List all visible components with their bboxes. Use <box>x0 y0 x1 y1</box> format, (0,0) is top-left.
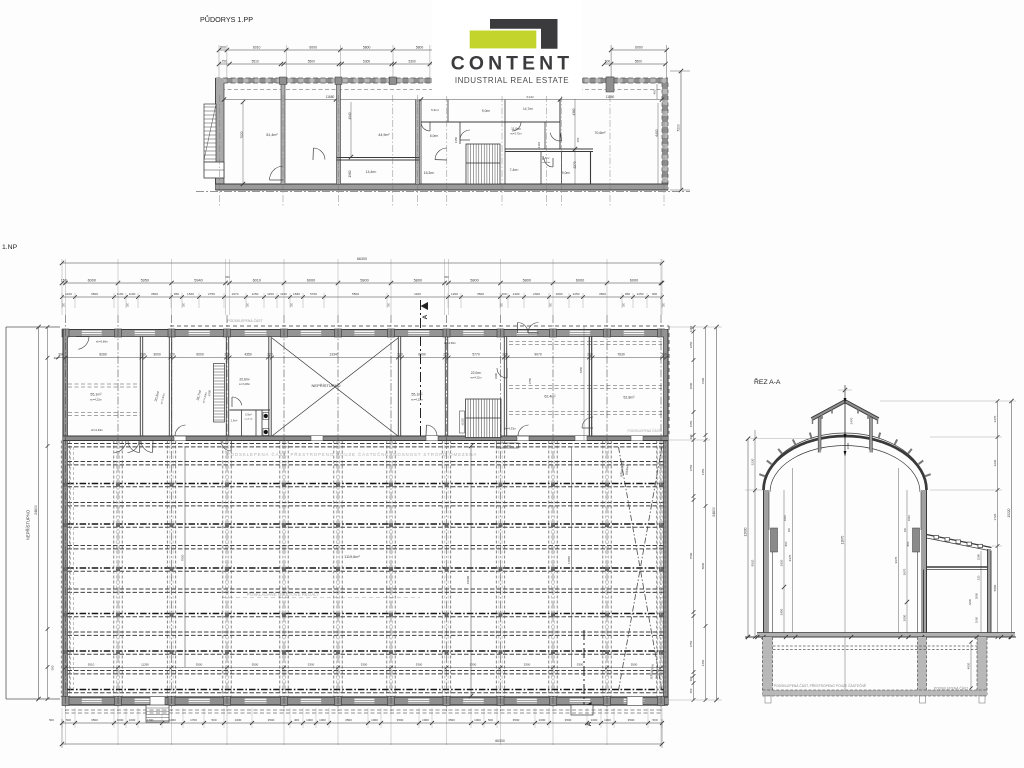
svg-text:24800: 24800 <box>34 505 38 515</box>
svg-text:6010: 6010 <box>253 278 261 282</box>
svg-text:300: 300 <box>652 292 657 296</box>
svg-text:5800: 5800 <box>363 45 371 49</box>
svg-text:9370: 9370 <box>894 556 898 563</box>
svg-text:PODSKLEPENÁ ČÁST: PODSKLEPENÁ ČÁST <box>934 686 968 691</box>
svg-text:1000: 1000 <box>306 718 313 722</box>
svg-text:6000: 6000 <box>196 352 204 356</box>
svg-text:2920: 2920 <box>780 559 784 566</box>
svg-text:1.NP: 1.NP <box>2 244 18 251</box>
svg-text:66300: 66300 <box>495 739 505 743</box>
svg-text:500: 500 <box>488 718 493 722</box>
svg-text:500: 500 <box>51 665 55 670</box>
svg-text:PODSKLEPENÁ ČÁST, PŘESTROPENO: PODSKLEPENÁ ČÁST, PŘESTROPENO POUZE ČÁST… <box>774 683 867 688</box>
svg-text:5500: 5500 <box>308 59 315 63</box>
svg-text:sv=3,08m: sv=3,08m <box>239 383 250 386</box>
svg-text:55,1m²: 55,1m² <box>411 393 423 397</box>
svg-text:3500: 3500 <box>151 292 158 296</box>
svg-text:500: 500 <box>49 718 54 722</box>
svg-text:200: 200 <box>502 352 508 356</box>
svg-text:3390: 3390 <box>494 372 498 379</box>
svg-text:4700: 4700 <box>208 389 212 396</box>
svg-text:9520: 9520 <box>751 559 755 566</box>
svg-text:200: 200 <box>397 352 403 356</box>
svg-text:1150: 1150 <box>267 292 274 296</box>
svg-text:35,7m²: 35,7m² <box>196 389 203 401</box>
svg-text:2470: 2470 <box>993 415 997 422</box>
svg-text:7,4m²: 7,4m² <box>510 168 520 172</box>
svg-text:1550: 1550 <box>689 420 693 427</box>
svg-text:1250: 1250 <box>637 292 644 296</box>
svg-text:NEPŘÍSTUPNO: NEPŘÍSTUPNO <box>312 383 341 388</box>
svg-text:5770: 5770 <box>472 352 480 356</box>
svg-text:300: 300 <box>551 302 553 307</box>
svg-text:5500: 5500 <box>252 663 259 667</box>
svg-text:1960: 1960 <box>169 718 176 722</box>
svg-text:300: 300 <box>58 352 64 356</box>
svg-text:300: 300 <box>661 352 667 356</box>
svg-text:170: 170 <box>169 352 175 356</box>
svg-text:22,0m²: 22,0m² <box>471 371 482 375</box>
svg-text:1100: 1100 <box>414 292 421 296</box>
svg-text:2300: 2300 <box>533 292 540 296</box>
svg-text:220: 220 <box>977 575 981 580</box>
svg-text:1100: 1100 <box>117 292 124 296</box>
svg-text:9,0m²: 9,0m² <box>562 171 570 175</box>
svg-text:1000: 1000 <box>422 718 429 722</box>
svg-text:950: 950 <box>625 292 630 296</box>
svg-text:sv=4,1m: sv=4,1m <box>244 419 253 421</box>
svg-text:4940: 4940 <box>348 112 352 119</box>
svg-text:CONTENT: CONTENT <box>451 53 573 75</box>
svg-text:sv=3,0m: sv=3,0m <box>542 162 551 164</box>
svg-text:44,9m²: 44,9m² <box>378 133 390 137</box>
svg-text:14,4m²: 14,4m² <box>366 170 377 174</box>
svg-text:52,8m²: 52,8m² <box>623 396 635 400</box>
svg-text:15220: 15220 <box>1007 508 1011 517</box>
svg-text:300: 300 <box>389 302 391 307</box>
svg-text:1000: 1000 <box>975 616 979 623</box>
svg-text:5300: 5300 <box>363 59 370 63</box>
svg-text:5500: 5500 <box>196 663 203 667</box>
svg-text:1150: 1150 <box>280 292 287 296</box>
svg-text:sh=5,66m: sh=5,66m <box>96 340 109 344</box>
svg-text:1700: 1700 <box>190 718 197 722</box>
svg-text:5500: 5500 <box>635 59 642 63</box>
svg-text:3500: 3500 <box>565 718 572 722</box>
svg-text:5950: 5950 <box>141 278 149 282</box>
svg-text:3500: 3500 <box>91 292 98 296</box>
svg-text:750: 750 <box>222 59 228 63</box>
svg-text:6000: 6000 <box>635 45 643 49</box>
svg-text:3500: 3500 <box>477 292 484 296</box>
svg-text:5510: 5510 <box>252 59 259 63</box>
svg-text:5800: 5800 <box>523 278 531 282</box>
svg-text:20,3m²: 20,3m² <box>154 390 161 402</box>
svg-text:300: 300 <box>689 676 693 681</box>
svg-text:PODSKLEPENÁ ČÁST: PODSKLEPENÁ ČÁST <box>227 318 262 323</box>
svg-text:2950: 2950 <box>780 608 784 615</box>
svg-text:450: 450 <box>689 688 693 693</box>
svg-text:62,4m²: 62,4m² <box>544 395 556 399</box>
svg-text:500: 500 <box>652 718 657 722</box>
svg-text:5800: 5800 <box>360 278 368 282</box>
svg-text:PODSKLEPENÁ ČÁST, PŘESTROPENO: PODSKLEPENÁ ČÁST, PŘESTROPENO POUZE ČÁST… <box>227 452 477 457</box>
svg-text:12600: 12600 <box>744 527 748 536</box>
svg-text:100: 100 <box>788 527 791 532</box>
svg-text:81,4m²: 81,4m² <box>266 133 278 137</box>
svg-text:11290: 11290 <box>141 663 149 667</box>
svg-text:1580: 1580 <box>977 553 981 560</box>
svg-text:5,9m²: 5,9m² <box>431 108 439 112</box>
svg-text:3870: 3870 <box>903 568 907 575</box>
svg-text:2000: 2000 <box>903 614 907 621</box>
svg-text:5800: 5800 <box>993 584 997 591</box>
svg-text:300: 300 <box>502 302 504 307</box>
svg-text:800: 800 <box>784 541 788 546</box>
svg-text:4220: 4220 <box>968 598 972 605</box>
svg-text:6000: 6000 <box>307 278 315 282</box>
svg-text:2750: 2750 <box>208 292 215 296</box>
svg-text:1119,6m²: 1119,6m² <box>344 555 360 559</box>
svg-text:5,9m²: 5,9m² <box>245 413 252 417</box>
svg-text:5300: 5300 <box>361 663 368 667</box>
svg-text:6010: 6010 <box>253 45 261 49</box>
svg-text:8280: 8280 <box>99 352 107 356</box>
svg-text:3000: 3000 <box>975 592 979 599</box>
svg-text:100: 100 <box>541 155 545 160</box>
svg-text:6000: 6000 <box>88 278 96 282</box>
svg-text:7020: 7020 <box>240 131 244 138</box>
svg-text:500: 500 <box>66 718 71 722</box>
svg-text:3500: 3500 <box>91 718 98 722</box>
svg-text:PŮDORYS 1.PP: PŮDORYS 1.PP <box>200 15 253 24</box>
svg-text:4020: 4020 <box>967 662 971 669</box>
svg-text:5300: 5300 <box>416 663 423 667</box>
svg-text:5300: 5300 <box>409 59 416 63</box>
svg-text:6,0m²: 6,0m² <box>430 134 438 138</box>
svg-text:4380: 4380 <box>572 108 576 115</box>
svg-text:1000: 1000 <box>474 718 481 722</box>
svg-text:300: 300 <box>54 356 59 360</box>
svg-text:1520: 1520 <box>187 292 194 296</box>
svg-text:1200: 1200 <box>451 292 458 296</box>
svg-text:4450: 4450 <box>701 468 705 475</box>
svg-text:3750: 3750 <box>689 464 693 471</box>
svg-text:1100: 1100 <box>65 292 72 296</box>
svg-text:1350: 1350 <box>454 136 458 143</box>
svg-text:6450: 6450 <box>579 366 583 373</box>
svg-text:4350: 4350 <box>244 352 252 356</box>
svg-text:1000: 1000 <box>235 718 242 722</box>
svg-text:7050: 7050 <box>181 554 185 561</box>
svg-text:1000: 1000 <box>604 718 611 722</box>
svg-text:16000: 16000 <box>466 575 470 584</box>
svg-text:7200: 7200 <box>677 124 681 132</box>
svg-text:16,3m²: 16,3m² <box>424 171 435 175</box>
svg-text:500: 500 <box>211 718 216 722</box>
svg-text:24800: 24800 <box>712 507 716 517</box>
svg-text:1000: 1000 <box>319 718 326 722</box>
svg-text:3500: 3500 <box>345 718 352 722</box>
svg-text:3500: 3500 <box>397 718 404 722</box>
svg-text:6000: 6000 <box>630 278 638 282</box>
svg-text:5800: 5800 <box>416 45 424 49</box>
svg-text:300: 300 <box>689 434 693 439</box>
svg-text:4110: 4110 <box>537 141 541 148</box>
svg-text:DRÁHA: DRÁHA <box>654 669 659 680</box>
svg-text:5800: 5800 <box>414 278 422 282</box>
svg-text:3500: 3500 <box>513 718 520 722</box>
svg-text:3500: 3500 <box>448 718 455 722</box>
svg-text:1000: 1000 <box>591 718 598 722</box>
svg-text:500: 500 <box>220 45 226 49</box>
svg-text:9,0m²: 9,0m² <box>482 109 490 113</box>
svg-text:1250: 1250 <box>573 292 580 296</box>
svg-text:11680: 11680 <box>326 95 335 99</box>
svg-text:3230: 3230 <box>751 458 755 465</box>
svg-text:200: 200 <box>267 352 273 356</box>
svg-text:1800: 1800 <box>556 292 563 296</box>
svg-text:11670: 11670 <box>841 535 845 544</box>
svg-text:950: 950 <box>174 292 179 296</box>
svg-text:8000: 8000 <box>701 562 705 569</box>
svg-text:POSKLÁDANÉ PALETOVÉ REGÁLY: POSKLÁDANÉ PALETOVÉ REGÁLY <box>247 592 320 597</box>
svg-text:66300: 66300 <box>357 257 367 261</box>
svg-text:3720: 3720 <box>993 513 997 520</box>
svg-text:1080: 1080 <box>846 442 850 449</box>
svg-text:5300: 5300 <box>524 663 531 667</box>
svg-text:3230: 3230 <box>993 459 997 466</box>
svg-text:20,6m²: 20,6m² <box>239 378 250 382</box>
svg-text:400: 400 <box>501 292 506 296</box>
svg-text:200: 200 <box>140 352 146 356</box>
svg-text:sv=4,22m: sv=4,22m <box>470 376 481 380</box>
svg-text:5500: 5500 <box>631 663 638 667</box>
svg-text:11,0m²: 11,0m² <box>511 127 521 131</box>
svg-text:1000: 1000 <box>129 718 136 722</box>
svg-text:14,7m²: 14,7m² <box>523 107 533 111</box>
svg-text:6000: 6000 <box>309 45 317 49</box>
svg-text:ŘEZ A-A: ŘEZ A-A <box>754 377 781 386</box>
svg-text:13340: 13340 <box>329 352 338 356</box>
svg-text:DRÁHA: DRÁHA <box>624 465 629 476</box>
svg-text:5940: 5940 <box>194 278 202 282</box>
svg-text:4450: 4450 <box>701 659 705 666</box>
svg-text:1970: 1970 <box>232 292 239 296</box>
svg-text:6000: 6000 <box>576 278 584 282</box>
svg-text:100: 100 <box>904 527 907 532</box>
svg-text:1250: 1250 <box>689 325 693 332</box>
svg-text:1400: 1400 <box>513 292 520 296</box>
svg-text:3500: 3500 <box>689 382 693 389</box>
svg-text:9370: 9370 <box>788 554 792 561</box>
svg-text:70,6m²: 70,6m² <box>594 131 606 135</box>
svg-text:5500: 5500 <box>352 292 359 296</box>
svg-text:300: 300 <box>292 302 294 307</box>
svg-text:300: 300 <box>664 302 666 307</box>
svg-text:300: 300 <box>624 302 626 307</box>
svg-text:9070: 9070 <box>534 352 542 356</box>
svg-text:2,9m²: 2,9m² <box>231 419 238 423</box>
svg-text:NEPŘÍSTUPNO: NEPŘÍSTUPNO <box>26 509 31 540</box>
svg-text:3500: 3500 <box>268 718 275 722</box>
svg-text:5300: 5300 <box>577 663 584 667</box>
svg-text:7630: 7630 <box>617 352 625 356</box>
svg-text:5800: 5800 <box>470 278 478 282</box>
svg-text:400: 400 <box>653 89 657 94</box>
svg-text:3500: 3500 <box>628 718 635 722</box>
svg-text:1000: 1000 <box>371 718 378 722</box>
svg-text:PODSKLEPENÁ ČÁST: PODSKLEPENÁ ČÁST <box>627 428 660 433</box>
svg-text:4750: 4750 <box>528 377 532 384</box>
svg-text:17050: 17050 <box>567 556 571 564</box>
svg-text:200: 200 <box>443 352 449 356</box>
svg-text:400: 400 <box>294 718 299 722</box>
svg-text:1700: 1700 <box>147 718 154 722</box>
svg-text:6400: 6400 <box>655 129 659 136</box>
svg-text:5700: 5700 <box>310 292 317 296</box>
svg-text:150: 150 <box>61 278 67 282</box>
svg-text:sh=4,66m: sh=4,66m <box>444 341 457 345</box>
svg-text:sv=4,22m: sv=4,22m <box>411 398 423 402</box>
svg-text:INDUSTRIAL REAL ESTATE: INDUSTRIAL REAL ESTATE <box>455 76 569 85</box>
svg-text:150: 150 <box>576 137 580 142</box>
svg-text:5510: 5510 <box>88 663 95 667</box>
svg-text:1100: 1100 <box>129 292 136 296</box>
svg-text:A: A <box>422 314 429 319</box>
svg-text:1960: 1960 <box>348 170 352 177</box>
svg-text:1950: 1950 <box>689 341 693 348</box>
svg-text:1830: 1830 <box>293 292 300 296</box>
svg-text:300: 300 <box>64 302 66 307</box>
svg-text:300: 300 <box>184 302 186 307</box>
svg-text:800: 800 <box>906 541 910 546</box>
svg-text:1910: 1910 <box>907 514 911 521</box>
svg-text:1910: 1910 <box>783 514 787 521</box>
svg-text:1000: 1000 <box>539 718 546 722</box>
svg-text:6090: 6090 <box>418 352 426 356</box>
svg-text:±0,000: ±0,000 <box>462 418 465 426</box>
svg-text:sh=4,33m: sh=4,33m <box>504 427 517 431</box>
svg-text:1000: 1000 <box>117 718 124 722</box>
svg-text:3750: 3750 <box>689 640 693 647</box>
svg-text:7200: 7200 <box>701 377 705 384</box>
svg-text:1150: 1150 <box>252 292 259 296</box>
svg-text:3500: 3500 <box>599 292 606 296</box>
svg-text:sv=3,72m: sv=3,72m <box>510 132 521 136</box>
svg-text:300: 300 <box>128 302 130 307</box>
svg-text:7500: 7500 <box>689 552 693 559</box>
svg-text:sh=4,33m: sh=4,33m <box>91 428 104 432</box>
svg-text:300: 300 <box>248 302 250 307</box>
svg-text:sv=2,97m: sv=2,97m <box>160 393 166 404</box>
svg-text:5300: 5300 <box>308 663 315 667</box>
svg-text:55,1m²: 55,1m² <box>90 393 102 397</box>
svg-text:2470: 2470 <box>850 417 854 424</box>
svg-text:3000: 3000 <box>153 352 161 356</box>
svg-text:sv=4,22m: sv=4,22m <box>90 398 102 402</box>
svg-text:500: 500 <box>605 59 611 63</box>
